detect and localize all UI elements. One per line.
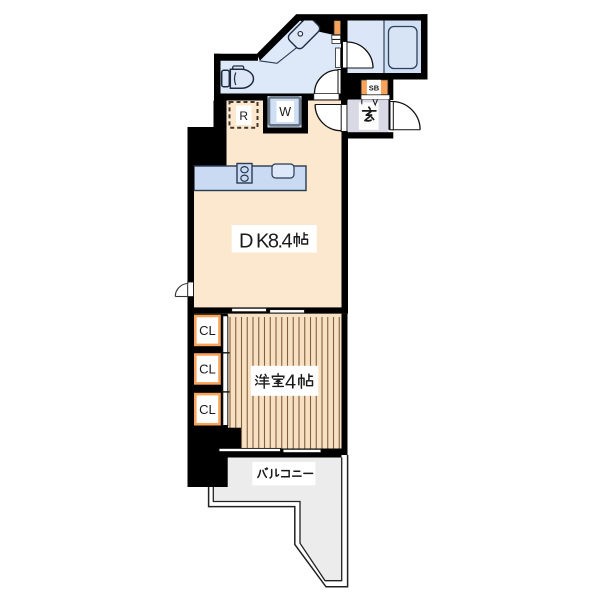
svg-text:D K8.4: D K8.4 [239, 231, 293, 253]
svg-text:W: W [279, 105, 291, 119]
svg-text:SB: SB [369, 83, 380, 92]
svg-text:CL: CL [199, 362, 216, 377]
svg-text:CL: CL [199, 402, 216, 417]
svg-text:4: 4 [285, 371, 296, 393]
svg-text:CL: CL [199, 323, 216, 338]
svg-text:R: R [239, 109, 248, 123]
